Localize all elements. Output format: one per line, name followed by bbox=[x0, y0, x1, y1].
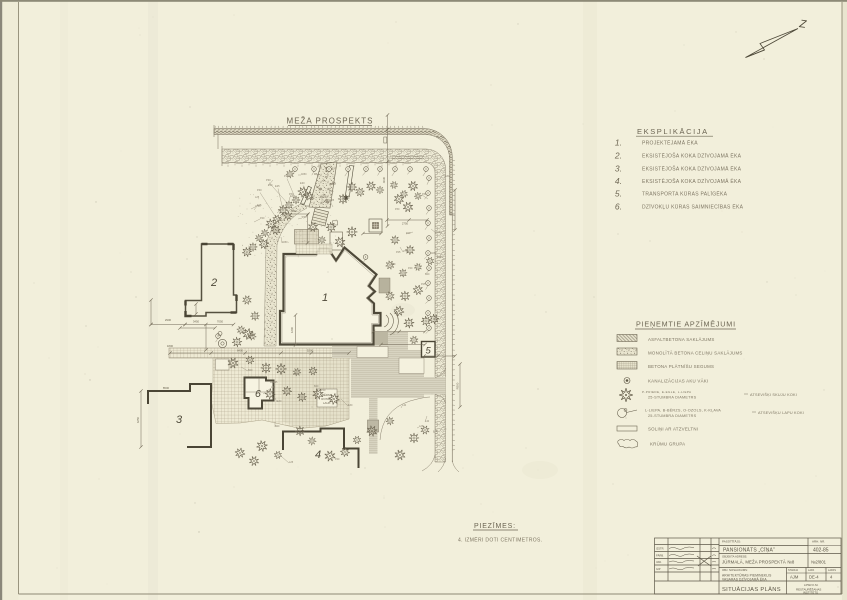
svg-text:MONOLĪTĀ BETONA CELIŅU SAKLĀJU: MONOLĪTĀ BETONA CELIŅU SAKLĀJUMS bbox=[648, 351, 743, 356]
svg-text:DE-4: DE-4 bbox=[809, 575, 819, 580]
svg-text:P30: P30 bbox=[450, 213, 455, 216]
svg-text:25-STUMBRA DIAMETRS: 25-STUMBRA DIAMETRS bbox=[648, 414, 697, 418]
svg-text:2750: 2750 bbox=[437, 256, 443, 259]
svg-text:EKSISTĒJOŠA KOKA DZĪVOJAMĀ ĒKA: EKSISTĒJOŠA KOKA DZĪVOJAMĀ ĒKA bbox=[642, 153, 742, 160]
svg-text:L30: L30 bbox=[271, 386, 276, 389]
svg-text:OBJ. NOSAUKUMS:: OBJ. NOSAUKUMS: bbox=[722, 568, 748, 572]
svg-text:6.: 6. bbox=[615, 202, 622, 212]
svg-text:6: 6 bbox=[255, 388, 261, 400]
svg-text:ARH. NR.: ARH. NR. bbox=[812, 540, 825, 544]
svg-text:5040: 5040 bbox=[291, 209, 297, 213]
svg-text:B20: B20 bbox=[275, 425, 280, 428]
svg-text:L-LIEPA, B-BĒRZS, O-OZOLS, K-K: L-LIEPA, B-BĒRZS, O-OZOLS, K-KĻAVA bbox=[645, 409, 721, 413]
svg-text:3.: 3. bbox=[615, 164, 622, 174]
svg-text:E30: E30 bbox=[348, 404, 353, 407]
svg-text:OBJEKTA ADRESE:: OBJEKTA ADRESE: bbox=[722, 555, 748, 559]
svg-text:3450: 3450 bbox=[193, 320, 200, 324]
svg-text:DZĪVOKĻU KŪRAS SAIMNIECĪBAS ĒK: DZĪVOKĻU KŪRAS SAIMNIECĪBAS ĒKA bbox=[642, 204, 744, 211]
svg-text:E25: E25 bbox=[293, 373, 298, 376]
svg-text:MEŽA PROSPEKTS: MEŽA PROSPEKTS bbox=[287, 117, 374, 126]
svg-text:PĀRB.: PĀRB. bbox=[656, 554, 664, 558]
svg-text:7050: 7050 bbox=[217, 320, 224, 324]
svg-text:4: 4 bbox=[315, 449, 321, 461]
svg-text:25-STUMBRA DIAMETRS: 25-STUMBRA DIAMETRS bbox=[648, 396, 697, 400]
svg-text:SOLIŅI AR ATZVELTNI: SOLIŅI AR ATZVELTNI bbox=[648, 427, 698, 432]
svg-text:LPSR K.M.: LPSR K.M. bbox=[804, 583, 818, 587]
svg-text:E30: E30 bbox=[445, 175, 450, 178]
svg-text:B20: B20 bbox=[314, 385, 319, 388]
svg-text:JŪRMALĀ, MEŽA PROSPEKTĀ №8: JŪRMALĀ, MEŽA PROSPEKTĀ №8 bbox=[722, 560, 795, 565]
svg-text:VASARAS DZĪVOJAMĀ ĒKA: VASARAS DZĪVOJAMĀ ĒKA bbox=[722, 578, 767, 582]
svg-text:P40: P40 bbox=[257, 188, 262, 192]
svg-text:P40: P40 bbox=[408, 267, 413, 270]
svg-text:P25: P25 bbox=[396, 251, 401, 254]
svg-text:P40: P40 bbox=[406, 232, 411, 235]
svg-text:E30: E30 bbox=[300, 181, 305, 185]
svg-text:4050: 4050 bbox=[431, 252, 437, 255]
svg-text:P40: P40 bbox=[321, 389, 326, 392]
svg-text:2900: 2900 bbox=[165, 318, 172, 322]
svg-text:1200: 1200 bbox=[290, 326, 294, 333]
svg-text:5.: 5. bbox=[615, 189, 622, 199]
svg-text:B20: B20 bbox=[425, 273, 430, 276]
svg-text:2750: 2750 bbox=[402, 222, 409, 226]
svg-text:B20: B20 bbox=[305, 205, 310, 208]
svg-text:2750: 2750 bbox=[403, 250, 409, 253]
svg-text:E25: E25 bbox=[257, 204, 262, 207]
svg-text:BETONA PLĀTNĪŠU SEGUMS: BETONA PLĀTNĪŠU SEGUMS bbox=[648, 364, 714, 369]
svg-text:P40: P40 bbox=[335, 458, 340, 461]
svg-text:4050: 4050 bbox=[282, 241, 288, 244]
svg-text:SITUĀCIJAS PLĀNS: SITUĀCIJAS PLĀNS bbox=[722, 586, 781, 593]
svg-text:E25: E25 bbox=[275, 184, 280, 188]
svg-text:1.: 1. bbox=[615, 138, 622, 148]
svg-text:INSTITŪTS: INSTITŪTS bbox=[803, 591, 818, 595]
svg-text:B20: B20 bbox=[248, 369, 253, 372]
svg-text:L40: L40 bbox=[402, 404, 407, 407]
svg-text:B20: B20 bbox=[391, 263, 396, 266]
svg-text:EKSISTĒJOŠA KOKA DZĪVOJAMĀ ĒKA: EKSISTĒJOŠA KOKA DZĪVOJAMĀ ĒKA bbox=[642, 178, 742, 185]
svg-text:P25: P25 bbox=[421, 283, 426, 286]
svg-text:KANALIZĀCIJAS AKU VĀKI: KANALIZĀCIJAS AKU VĀKI bbox=[648, 379, 708, 384]
svg-text:6250: 6250 bbox=[136, 416, 140, 423]
svg-text:2: 2 bbox=[210, 277, 217, 289]
svg-text:AJM: AJM bbox=[790, 575, 799, 580]
svg-text:EKSPLIKĀCIJA: EKSPLIKĀCIJA bbox=[637, 127, 709, 136]
svg-text:2.: 2. bbox=[614, 151, 622, 161]
svg-text:PANSIONĀTS „CĪŅA”: PANSIONĀTS „CĪŅA” bbox=[723, 547, 775, 554]
svg-text:LAPAS: LAPAS bbox=[828, 569, 836, 572]
svg-text:ASFALTBETONA SAKLĀJUMS: ASFALTBETONA SAKLĀJUMS bbox=[648, 337, 715, 342]
svg-text:ATSEVIŠĶU LAPU KOKI: ATSEVIŠĶU LAPU KOKI bbox=[758, 410, 804, 415]
svg-text:1800: 1800 bbox=[167, 344, 174, 348]
svg-text:L25: L25 bbox=[419, 425, 424, 428]
svg-text:1: 1 bbox=[322, 292, 328, 304]
svg-text:4030: 4030 bbox=[382, 176, 386, 183]
svg-text:PROJEKTĒJAMĀ ĒKA: PROJEKTĒJAMĀ ĒKA bbox=[642, 140, 698, 147]
svg-text:402-85: 402-85 bbox=[813, 548, 829, 554]
svg-text:3: 3 bbox=[176, 414, 183, 426]
svg-text:5200: 5200 bbox=[307, 349, 314, 353]
svg-text:L25: L25 bbox=[330, 199, 335, 202]
svg-text:4050: 4050 bbox=[436, 231, 442, 234]
svg-text:4050: 4050 bbox=[270, 381, 276, 384]
svg-text:P30: P30 bbox=[395, 208, 400, 211]
svg-text:L25: L25 bbox=[281, 219, 286, 222]
svg-text:E30: E30 bbox=[277, 400, 282, 403]
svg-text:PIEŅEMTIE APZĪMĒJUMI: PIEŅEMTIE APZĪMĒJUMI bbox=[636, 320, 736, 329]
svg-text:P25: P25 bbox=[284, 174, 289, 178]
svg-text:4.: 4. bbox=[615, 176, 622, 186]
svg-text:PIEZĪMES:: PIEZĪMES: bbox=[474, 522, 516, 530]
svg-text:ATSEVIŠĶI SKUJU KOKI: ATSEVIŠĶI SKUJU KOKI bbox=[750, 392, 797, 397]
svg-text:№2/801: №2/801 bbox=[811, 560, 827, 565]
svg-text:4. IZMĒRI DOTI CENTIMETROS.: 4. IZMĒRI DOTI CENTIMETROS. bbox=[458, 537, 542, 544]
svg-text:4050: 4050 bbox=[301, 173, 307, 176]
svg-text:IZSTR.: IZSTR. bbox=[656, 547, 664, 551]
svg-text:P40: P40 bbox=[260, 217, 265, 220]
svg-text:KRŪMU GRUPA: KRŪMU GRUPA bbox=[650, 442, 685, 447]
svg-text:TRANSPORTA KŪRAS PALĪGĒKA: TRANSPORTA KŪRAS PALĪGĒKA bbox=[642, 191, 728, 198]
svg-text:VAD.: VAD. bbox=[656, 560, 662, 564]
svg-text:R500: R500 bbox=[456, 382, 460, 389]
svg-text:P-PRIEDE, E-EGLE, L-LIEPA: P-PRIEDE, E-EGLE, L-LIEPA bbox=[642, 390, 691, 394]
svg-text:PASŪTĪTĀJS:: PASŪTĪTĀJS: bbox=[722, 540, 741, 544]
svg-text:P30: P30 bbox=[266, 178, 271, 182]
svg-text:L40: L40 bbox=[425, 420, 430, 423]
svg-text:GIP: GIP bbox=[656, 567, 661, 571]
svg-text:L25: L25 bbox=[255, 196, 260, 199]
svg-text:L25: L25 bbox=[433, 430, 438, 433]
svg-text:L25: L25 bbox=[289, 461, 294, 464]
svg-text:5: 5 bbox=[426, 346, 432, 357]
svg-text:LAPA: LAPA bbox=[808, 569, 815, 572]
svg-text:8500: 8500 bbox=[163, 386, 170, 390]
svg-text:4050: 4050 bbox=[322, 196, 328, 199]
svg-text:STADIJA: STADIJA bbox=[788, 569, 798, 572]
svg-text:EKSISTĒJOŠA KOKA DZĪVOJAMĀ ĒKA: EKSISTĒJOŠA KOKA DZĪVOJAMĀ ĒKA bbox=[642, 166, 742, 173]
svg-text:P25: P25 bbox=[329, 190, 334, 193]
svg-text:6400: 6400 bbox=[237, 349, 244, 353]
